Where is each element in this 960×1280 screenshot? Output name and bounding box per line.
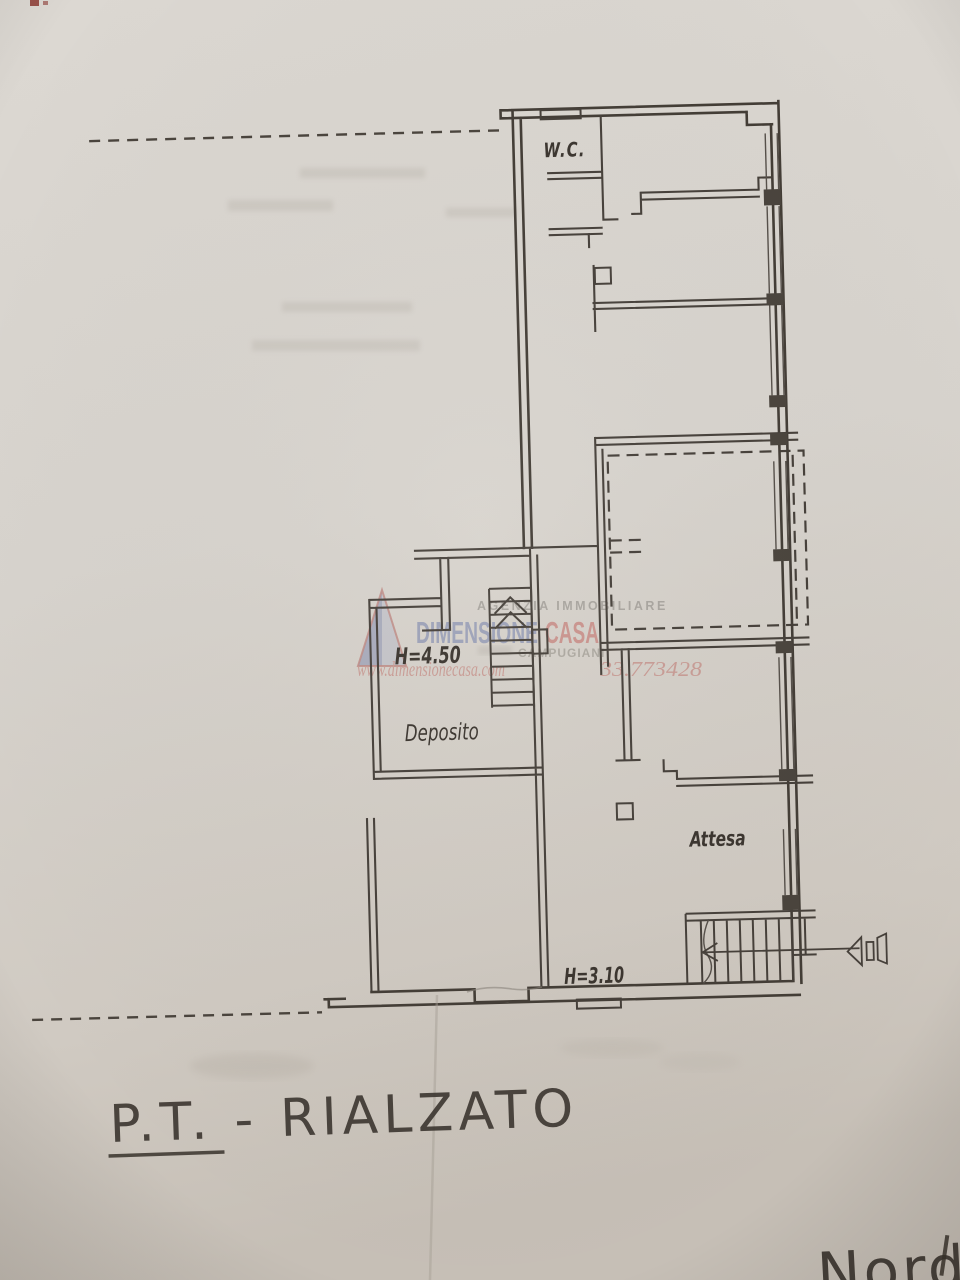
floorplan-scan: AGENZIA IMMOBILIARE DIMENSIONE CASA CAMP… bbox=[0, 0, 960, 1280]
scanned-floorplan-page: AGENZIA IMMOBILIARE DIMENSIONE CASA CAMP… bbox=[0, 0, 960, 1280]
photo-vignette bbox=[0, 0, 960, 1280]
